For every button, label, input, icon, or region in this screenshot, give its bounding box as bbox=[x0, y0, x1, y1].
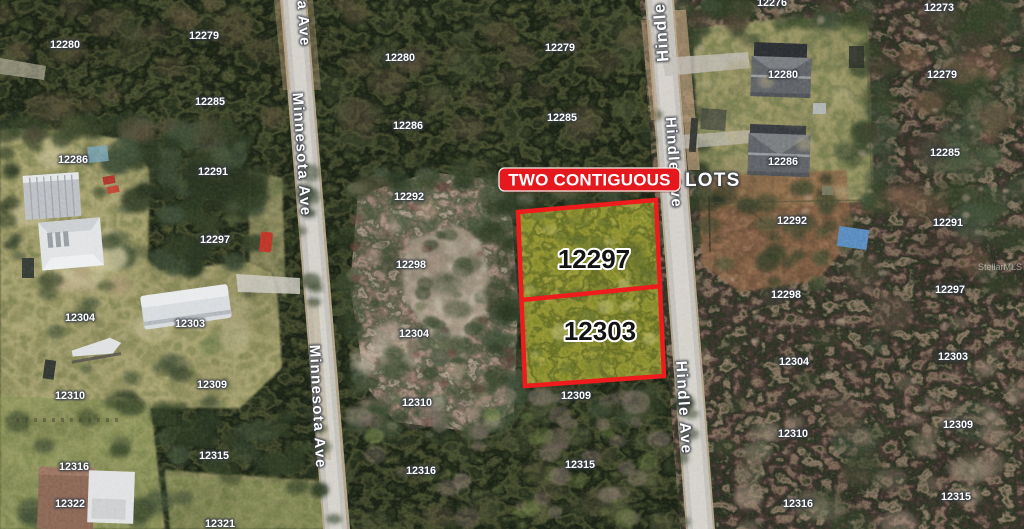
svg-text:12321: 12321 bbox=[205, 518, 235, 529]
svg-text:12292: 12292 bbox=[777, 215, 807, 227]
svg-text:LOTS: LOTS bbox=[685, 170, 740, 191]
svg-text:12298: 12298 bbox=[396, 259, 426, 271]
svg-text:12291: 12291 bbox=[198, 166, 228, 178]
svg-text:12297: 12297 bbox=[200, 234, 230, 246]
svg-text:12280: 12280 bbox=[50, 39, 80, 51]
svg-text:12292: 12292 bbox=[394, 191, 424, 203]
svg-text:12279: 12279 bbox=[545, 42, 575, 54]
svg-text:12309: 12309 bbox=[943, 419, 973, 431]
svg-text:a Ave: a Ave bbox=[293, 0, 313, 47]
svg-text:12286: 12286 bbox=[768, 156, 798, 168]
svg-text:12303: 12303 bbox=[938, 351, 968, 363]
svg-text:12315: 12315 bbox=[565, 459, 595, 471]
svg-text:12322: 12322 bbox=[55, 498, 85, 510]
svg-text:12273: 12273 bbox=[924, 2, 954, 14]
svg-text:12286: 12286 bbox=[58, 154, 88, 166]
svg-text:TWO CONTIGUOUS: TWO CONTIGUOUS bbox=[508, 171, 670, 190]
svg-text:12303: 12303 bbox=[175, 318, 205, 330]
svg-text:12304: 12304 bbox=[65, 312, 95, 324]
svg-text:12285: 12285 bbox=[930, 147, 960, 159]
svg-text:12315: 12315 bbox=[941, 491, 971, 503]
svg-text:StellarMLS: StellarMLS bbox=[978, 262, 1022, 272]
svg-text:12285: 12285 bbox=[547, 112, 577, 124]
svg-text:12291: 12291 bbox=[933, 217, 963, 229]
svg-text:12279: 12279 bbox=[189, 30, 219, 42]
svg-text:12316: 12316 bbox=[406, 465, 436, 477]
svg-text:12304: 12304 bbox=[399, 328, 429, 340]
svg-text:12276: 12276 bbox=[757, 0, 787, 9]
svg-text:12297: 12297 bbox=[558, 244, 630, 274]
svg-text:12316: 12316 bbox=[59, 461, 89, 473]
svg-text:12285: 12285 bbox=[195, 96, 225, 108]
svg-text:12280: 12280 bbox=[768, 69, 798, 81]
svg-text:12315: 12315 bbox=[199, 450, 229, 462]
svg-text:12297: 12297 bbox=[935, 284, 965, 296]
svg-text:12309: 12309 bbox=[561, 390, 591, 402]
svg-text:12310: 12310 bbox=[55, 390, 85, 402]
svg-text:12304: 12304 bbox=[779, 356, 809, 368]
svg-text:12286: 12286 bbox=[393, 120, 423, 132]
svg-text:12303: 12303 bbox=[564, 316, 636, 346]
svg-text:12310: 12310 bbox=[402, 397, 432, 409]
svg-text:12310: 12310 bbox=[778, 428, 808, 440]
svg-text:12280: 12280 bbox=[385, 52, 415, 64]
svg-text:12316: 12316 bbox=[783, 498, 813, 510]
svg-text:12279: 12279 bbox=[927, 69, 957, 81]
svg-text:12298: 12298 bbox=[771, 289, 801, 301]
svg-text:12309: 12309 bbox=[197, 379, 227, 391]
